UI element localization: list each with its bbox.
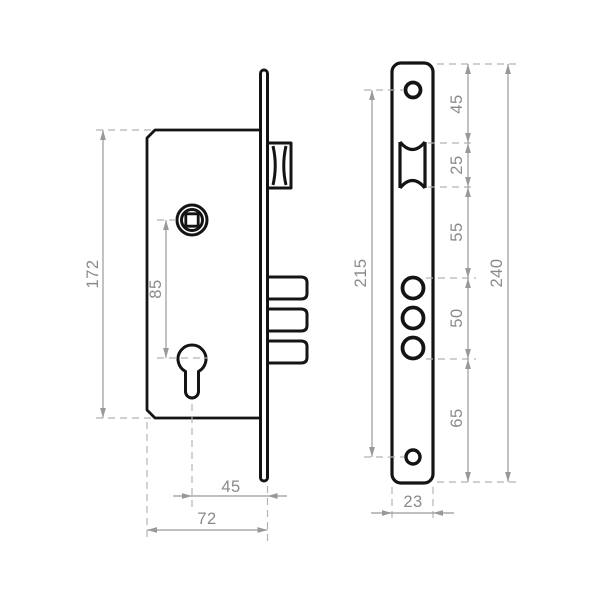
dim-label-faceplate-height: 240 [488, 258, 506, 287]
dim-label-bolt-holes-span: 50 [448, 308, 466, 327]
dim-label-latch-cutout-height: 25 [448, 155, 466, 174]
screw-hole-top [406, 83, 421, 98]
deadbolt-holes [403, 278, 424, 359]
dim-label-bolt-holes-to-bottom: 65 [448, 408, 466, 427]
lock-body-outline [147, 130, 261, 418]
dim-label-body-height: 172 [84, 259, 102, 288]
deadbolt-hole [403, 278, 424, 299]
dim-label-top-to-latch: 45 [448, 94, 466, 113]
screw-hole-bottom [406, 450, 420, 464]
dim-label-screw-hole-span: 215 [352, 258, 370, 287]
front-view-faceplate [392, 63, 433, 483]
dim-chain: 45 25 55 50 65 [448, 64, 468, 482]
faceplate-edge [261, 70, 268, 481]
dim-faceplate-width: 23 [371, 487, 454, 523]
dim-cylinder-to-faceplate: 45 [173, 404, 287, 544]
dim-label-faceplate-width: 23 [403, 493, 422, 511]
side-view-lock-body [147, 70, 307, 481]
dim-label-follower-to-cylinder: 85 [147, 279, 165, 298]
faceplate-outline [392, 63, 433, 483]
deadbolt-hole [403, 308, 424, 329]
dim-label-latch-to-bolt-holes: 55 [448, 222, 466, 241]
dim-label-body-depth: 72 [197, 510, 216, 528]
dim-label-cylinder-to-faceplate: 45 [221, 478, 240, 496]
dim-faceplate-height: 240 [488, 64, 508, 482]
deadbolt-hole [403, 338, 424, 359]
dim-body-height: 172 [84, 130, 151, 418]
spindle-follower [177, 205, 207, 235]
technical-drawing: 172 85 45 72 [0, 0, 600, 600]
dim-body-depth: 72 [147, 422, 268, 540]
